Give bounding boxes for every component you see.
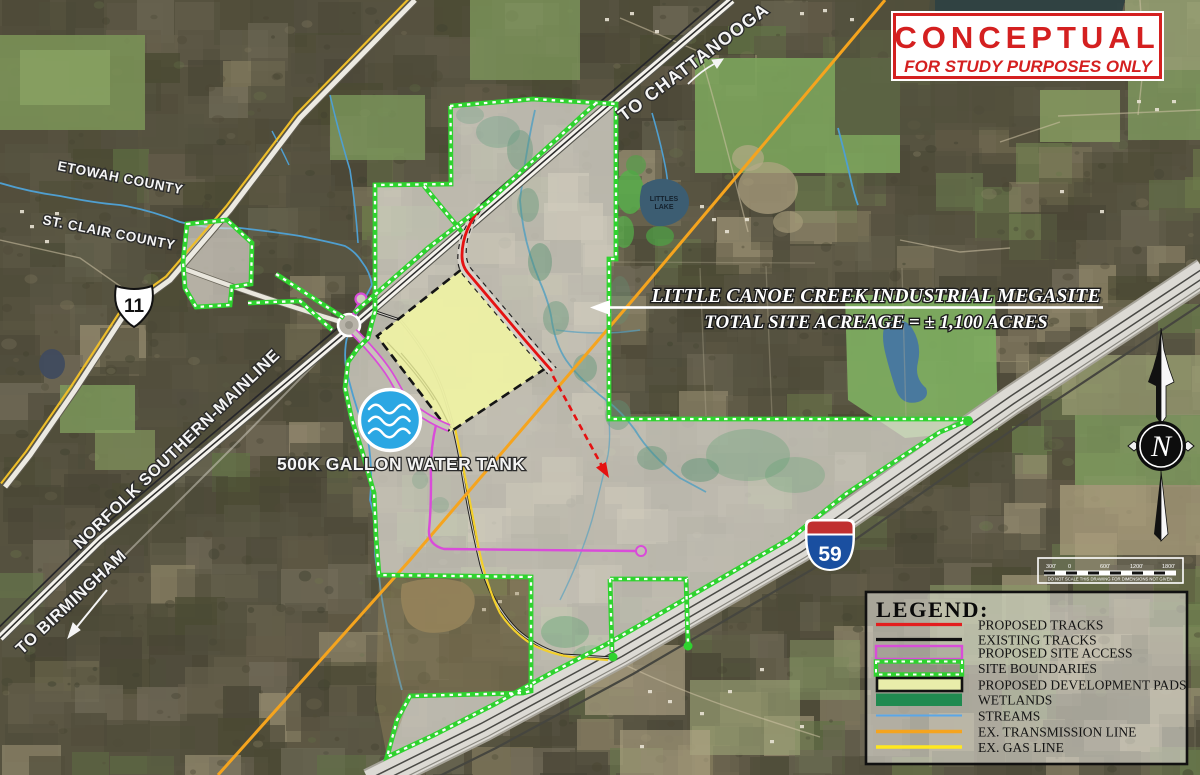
svg-text:59: 59 bbox=[818, 543, 841, 566]
svg-text:PROPOSED TRACKS: PROPOSED TRACKS bbox=[978, 618, 1103, 633]
svg-text:1200': 1200' bbox=[1130, 564, 1143, 570]
svg-text:STREAMS: STREAMS bbox=[978, 709, 1040, 724]
svg-text:600': 600' bbox=[1100, 564, 1110, 570]
svg-text:N: N bbox=[1150, 430, 1173, 463]
svg-text:PROPOSED DEVELOPMENT PADS: PROPOSED DEVELOPMENT PADS bbox=[978, 678, 1187, 693]
svg-text:WETLANDS: WETLANDS bbox=[978, 693, 1052, 708]
svg-text:CONCEPTUAL: CONCEPTUAL bbox=[894, 20, 1159, 55]
svg-text:0: 0 bbox=[1068, 564, 1071, 570]
svg-text:LAKE: LAKE bbox=[654, 204, 673, 211]
svg-text:300': 300' bbox=[1046, 564, 1056, 570]
svg-text:EX. TRANSMISSION LINE: EX. TRANSMISSION LINE bbox=[978, 725, 1136, 740]
svg-text:PROPOSED SITE ACCESS: PROPOSED SITE ACCESS bbox=[978, 646, 1133, 661]
svg-text:LEGEND:: LEGEND: bbox=[876, 597, 989, 622]
svg-text:500K GALLON WATER TANK: 500K GALLON WATER TANK bbox=[277, 454, 525, 474]
svg-text:LITTLES: LITTLES bbox=[650, 196, 679, 203]
svg-text:1800': 1800' bbox=[1162, 564, 1175, 570]
svg-text:SITE BOUNDARIES: SITE BOUNDARIES bbox=[978, 661, 1097, 676]
svg-text:EX. GAS LINE: EX. GAS LINE bbox=[978, 740, 1064, 755]
svg-text:TOTAL SITE ACREAGE = ± 1,100 A: TOTAL SITE ACREAGE = ± 1,100 ACRES bbox=[704, 312, 1047, 333]
svg-text:DO NOT SCALE THIS DRAWING FOR: DO NOT SCALE THIS DRAWING FOR DIMENSIONS… bbox=[1048, 577, 1173, 582]
svg-text:FOR STUDY PURPOSES ONLY: FOR STUDY PURPOSES ONLY bbox=[904, 57, 1153, 76]
svg-text:11: 11 bbox=[124, 296, 145, 317]
svg-text:LITTLE CANOE CREEK INDUSTRIAL: LITTLE CANOE CREEK INDUSTRIAL MEGASITE bbox=[650, 285, 1100, 307]
